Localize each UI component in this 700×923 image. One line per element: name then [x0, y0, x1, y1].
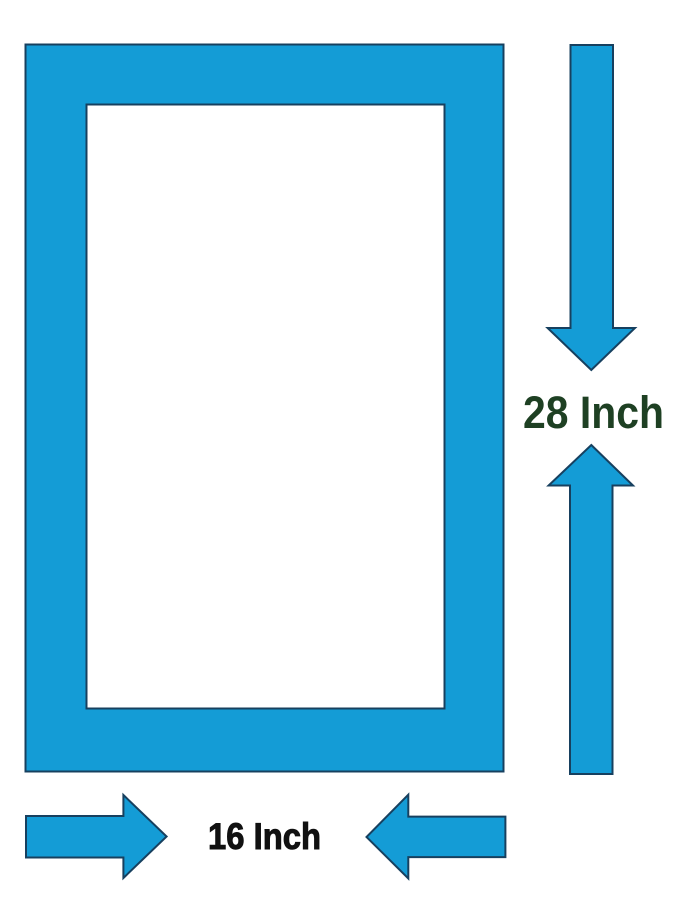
svg-text:16 Inch: 16 Inch [208, 816, 321, 857]
svg-text:28 Inch: 28 Inch [523, 387, 664, 438]
